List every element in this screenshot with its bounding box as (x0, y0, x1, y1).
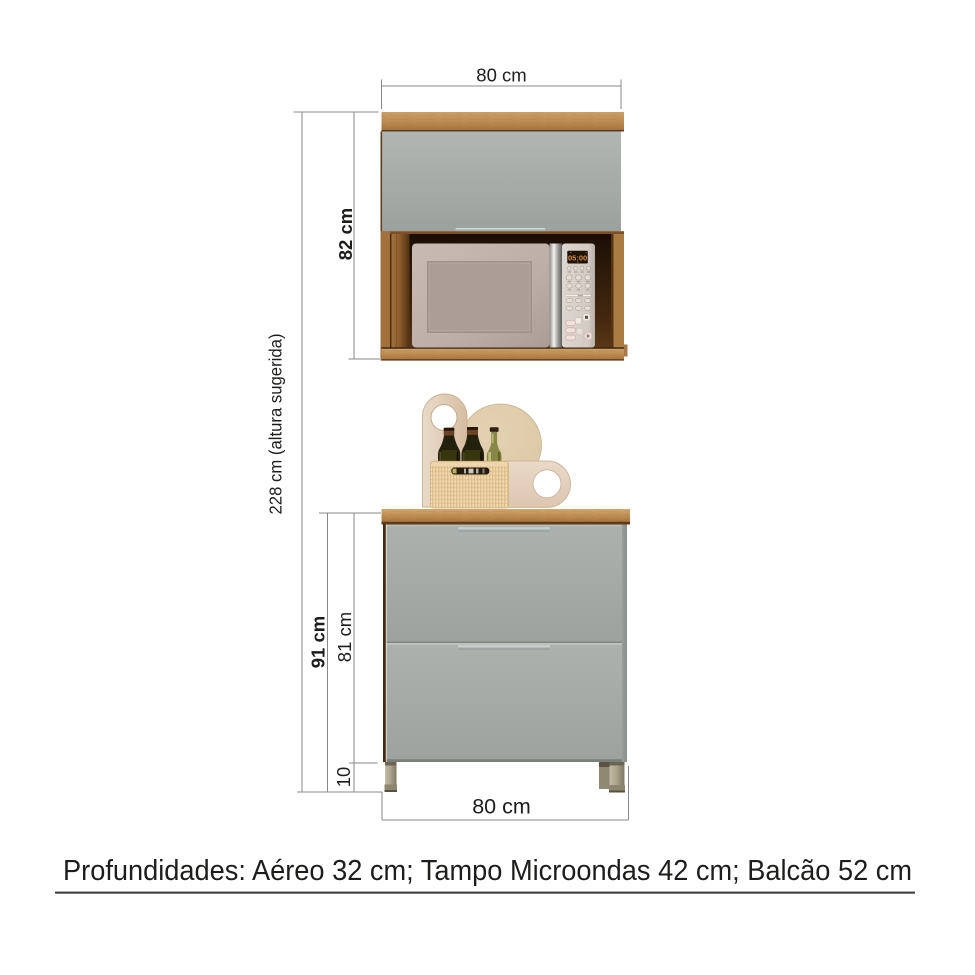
svg-text:80 cm: 80 cm (476, 65, 526, 86)
svg-text:81 cm: 81 cm (334, 612, 355, 662)
svg-text:80 cm: 80 cm (472, 795, 531, 819)
svg-text:228 cm (altura sugerida): 228 cm (altura sugerida) (266, 334, 286, 515)
svg-text:91 cm: 91 cm (308, 616, 329, 668)
svg-text:82 cm: 82 cm (335, 208, 356, 260)
svg-text:10: 10 (333, 767, 354, 788)
svg-text:Profundidades: Aéreo 32 cm; Ta: Profundidades: Aéreo 32 cm; Tampo Microo… (63, 855, 912, 887)
svg-text:05:00: 05:00 (568, 253, 587, 262)
